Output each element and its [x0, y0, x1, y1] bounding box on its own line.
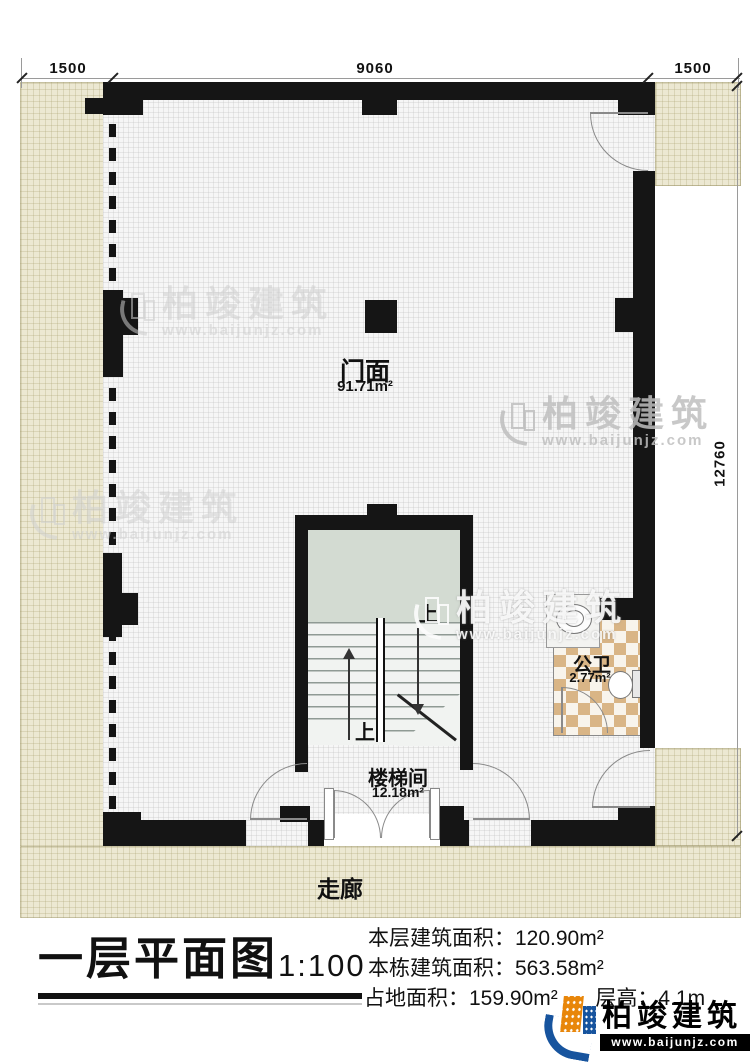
exterior-strip-left [20, 82, 104, 918]
stat-value: 120.90m² [515, 927, 604, 950]
title-underline-thick [38, 993, 362, 999]
door-gap-bottom-right [469, 820, 531, 846]
pillar-left-1 [103, 290, 123, 377]
stair-treads-left [308, 622, 376, 722]
wall-right-upper [633, 171, 655, 598]
stair-divider [376, 618, 385, 742]
dim-line-top [22, 78, 740, 79]
pillar-right-1 [615, 298, 633, 332]
stair-arrow-up-head [343, 648, 355, 659]
dim-line-right [737, 86, 738, 838]
stair-up-label-bottom: 上 [355, 716, 375, 745]
pillar-top-left-step [85, 98, 105, 114]
stat-floor-area: 本层建筑面积：120.90m² [368, 922, 604, 952]
dim-top-left: 1500 [38, 60, 98, 77]
dim-top-mid: 9060 [345, 60, 405, 77]
page-title: 一层平面图 [38, 936, 278, 981]
sink-basin-icon [564, 610, 584, 627]
dim-top-right: 1500 [663, 60, 723, 77]
storefront-area: 91.71m² [315, 378, 415, 395]
stat-label: 本栋建筑面积： [368, 957, 515, 980]
corridor-label: 走廊 [300, 870, 380, 904]
exterior-strip-bottom-right [655, 748, 741, 846]
stat-value: 563.58m² [515, 957, 604, 980]
stair-wall-top-stub [367, 504, 397, 515]
wall-toilet-top [600, 598, 642, 620]
stair-wall-top [295, 515, 473, 530]
pillar-left-2-step [122, 593, 138, 625]
wall-top [103, 82, 655, 100]
pillar-left-2 [103, 553, 122, 637]
stairwell-area: 12.18m² [348, 784, 448, 800]
corridor-zone [20, 846, 741, 918]
toilet-area: 2.77m² [550, 670, 630, 685]
stair-arrow-down-head [412, 704, 424, 715]
stair-wall-left [295, 515, 308, 772]
company-url: www.baijunjz.com [600, 1034, 750, 1051]
stat-building-area: 本栋建筑面积：563.58m² [368, 952, 604, 982]
stair-wall-right [460, 515, 473, 770]
stair-arrow-down-stem [417, 628, 419, 706]
company-name: 柏竣建筑 [602, 1002, 742, 1032]
pillar-top-center [362, 100, 397, 115]
stair-up-label-top: 上 [418, 598, 438, 627]
stair-arrow-up-stem [348, 657, 350, 740]
pier-bottom-right [618, 806, 655, 846]
dim-ext-left [21, 58, 22, 88]
floor-plan-canvas: 上 上 门面 91.71m [0, 0, 750, 1062]
dim-right: 12760 [712, 434, 729, 494]
door-gap-bottom-left [246, 820, 308, 846]
company-logo-icon [542, 996, 600, 1056]
storefront-open-edge [109, 100, 116, 822]
pillar-top-right [618, 82, 655, 115]
column-center [365, 300, 397, 333]
pillar-left-1-step [123, 298, 138, 335]
plan-scale: 1:100 [278, 950, 366, 981]
stat-label: 占地面积： [364, 987, 469, 1010]
exterior-strip-top-right [655, 82, 741, 186]
stat-label: 本层建筑面积： [368, 927, 515, 950]
wall-right-toilet [640, 598, 655, 748]
title-underline-thin [38, 1003, 362, 1005]
